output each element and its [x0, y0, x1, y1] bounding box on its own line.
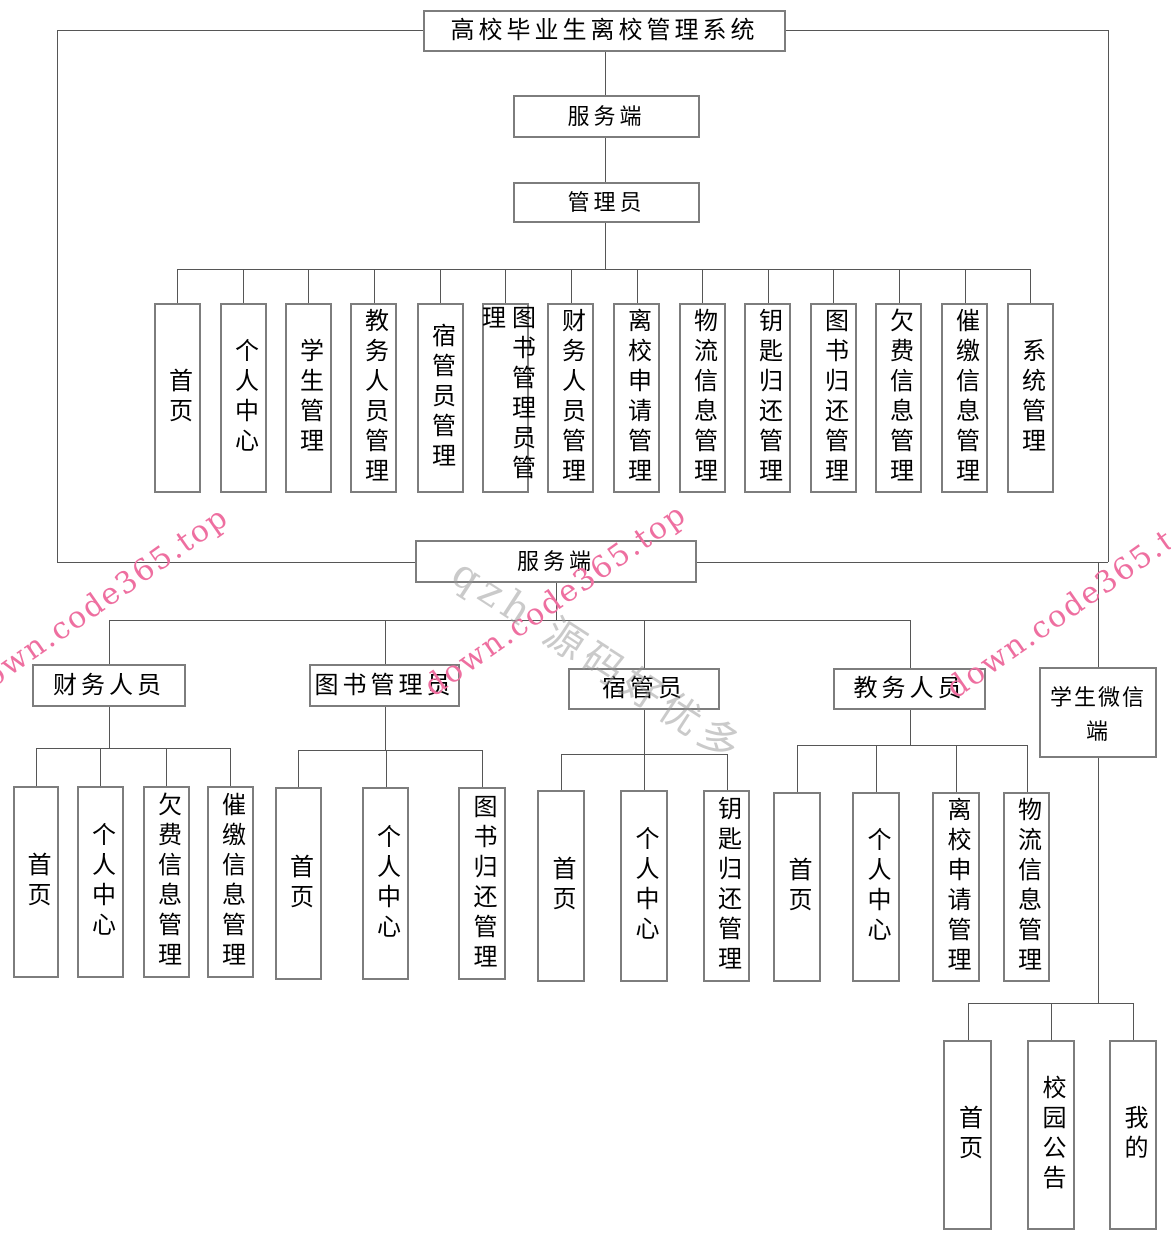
- connector-line: [605, 223, 606, 269]
- connector-line: [1027, 745, 1028, 792]
- connector-line: [177, 269, 1030, 270]
- node-admin-book-return: 图书归还管理: [810, 303, 857, 493]
- node-admin-home: 首页: [154, 303, 201, 493]
- node-server-top: 服务端: [513, 95, 700, 138]
- connector-line: [1133, 1003, 1134, 1040]
- connector-line: [605, 138, 606, 182]
- node-dorm-key-return: 钥匙归还管理: [703, 790, 750, 982]
- connector-line: [571, 269, 572, 303]
- node-admin-logistics-info: 物流信息管理: [679, 303, 726, 493]
- connector-line: [833, 269, 834, 303]
- connector-line: [605, 52, 606, 95]
- connector-line: [440, 269, 441, 303]
- node-finance-home: 首页: [13, 786, 59, 978]
- node-finance-payment-reminder: 催缴信息管理: [207, 786, 254, 978]
- node-admin-system: 系统管理: [1007, 303, 1054, 493]
- connector-line: [36, 748, 37, 786]
- connector-line: [637, 269, 638, 303]
- connector-line: [57, 30, 58, 562]
- node-librarian: 图书管理员: [309, 664, 460, 707]
- node-server-bottom: 服务端: [415, 540, 697, 583]
- connector-line: [385, 620, 386, 664]
- node-academic-profile: 个人中心: [852, 792, 900, 982]
- node-finance-profile: 个人中心: [77, 786, 124, 978]
- node-admin: 管理员: [513, 182, 700, 223]
- node-admin-dorm-managers: 宿管员管理: [417, 303, 464, 493]
- connector-line: [702, 269, 703, 303]
- connector-line: [166, 748, 167, 786]
- node-dorm-home: 首页: [537, 790, 585, 982]
- connector-line: [36, 748, 230, 749]
- node-academic-staff: 教务人员: [833, 668, 986, 710]
- connector-line: [1098, 758, 1099, 1003]
- node-admin-students: 学生管理: [285, 303, 332, 493]
- node-dorm-manager: 宿管员: [568, 668, 720, 710]
- node-academic-leave-applications: 离校申请管理: [932, 792, 980, 982]
- node-finance-arrears-info: 欠费信息管理: [143, 786, 190, 978]
- connector-line: [644, 754, 645, 790]
- connector-line: [386, 750, 387, 787]
- connector-line: [968, 1003, 969, 1040]
- connector-line: [644, 620, 645, 668]
- connector-line: [482, 750, 483, 787]
- connector-line: [374, 269, 375, 303]
- connector-line: [899, 269, 900, 303]
- node-admin-leave-applications: 离校申请管理: [613, 303, 660, 493]
- connector-line: [230, 748, 231, 786]
- connector-line: [385, 707, 386, 750]
- node-academic-logistics-info: 物流信息管理: [1003, 792, 1050, 982]
- connector-line: [109, 620, 110, 664]
- node-finance-staff: 财务人员: [32, 664, 186, 707]
- node-wechat-mine: 我的: [1109, 1040, 1157, 1230]
- node-dorm-profile: 个人中心: [620, 790, 668, 982]
- node-librarian-home: 首页: [275, 787, 322, 980]
- connector-line: [797, 745, 798, 792]
- node-academic-home: 首页: [773, 792, 821, 982]
- connector-line: [57, 562, 415, 563]
- connector-line: [797, 745, 1027, 746]
- connector-line: [965, 269, 966, 303]
- connector-line: [644, 710, 645, 754]
- connector-line: [308, 269, 309, 303]
- node-admin-arrears-info: 欠费信息管理: [875, 303, 922, 493]
- connector-line: [1051, 1003, 1052, 1040]
- connector-line: [876, 745, 877, 792]
- connector-line: [556, 583, 557, 620]
- connector-line: [768, 269, 769, 303]
- connector-line: [910, 710, 911, 745]
- node-librarian-profile: 个人中心: [362, 787, 409, 980]
- node-admin-key-return: 钥匙归还管理: [744, 303, 791, 493]
- connector-line: [177, 269, 178, 303]
- diagram-canvas: 高校毕业生离校管理系统服务端管理员首页个人中心学生管理教务人员管理宿管员管理图书…: [0, 0, 1171, 1246]
- connector-line: [298, 750, 299, 787]
- connector-line: [109, 707, 110, 748]
- node-librarian-book-return: 图书归还管理: [458, 787, 506, 980]
- node-admin-finance-staff: 财务人员管理: [547, 303, 594, 493]
- node-root-title: 高校毕业生离校管理系统: [423, 10, 786, 52]
- connector-line: [243, 269, 244, 303]
- node-wechat-campus-notice: 校园公告: [1027, 1040, 1075, 1230]
- connector-line: [298, 750, 482, 751]
- node-admin-academic-staff: 教务人员管理: [350, 303, 397, 493]
- node-admin-librarians: 图书管理员管理: [482, 303, 529, 493]
- connector-line: [1098, 562, 1099, 667]
- connector-line: [956, 745, 957, 792]
- node-admin-payment-reminder: 催缴信息管理: [941, 303, 988, 493]
- connector-line: [697, 562, 1108, 563]
- connector-line: [786, 30, 1108, 31]
- node-wechat-home: 首页: [943, 1040, 992, 1230]
- connector-line: [727, 754, 728, 790]
- connector-line: [100, 748, 101, 786]
- connector-line: [1108, 30, 1109, 562]
- connector-line: [109, 620, 910, 621]
- connector-line: [561, 754, 562, 790]
- node-admin-profile: 个人中心: [220, 303, 267, 493]
- connector-line: [1030, 269, 1031, 303]
- node-student-wechat: 学生微信端: [1039, 667, 1157, 758]
- connector-line: [57, 30, 423, 31]
- connector-line: [910, 620, 911, 668]
- connector-line: [505, 269, 506, 303]
